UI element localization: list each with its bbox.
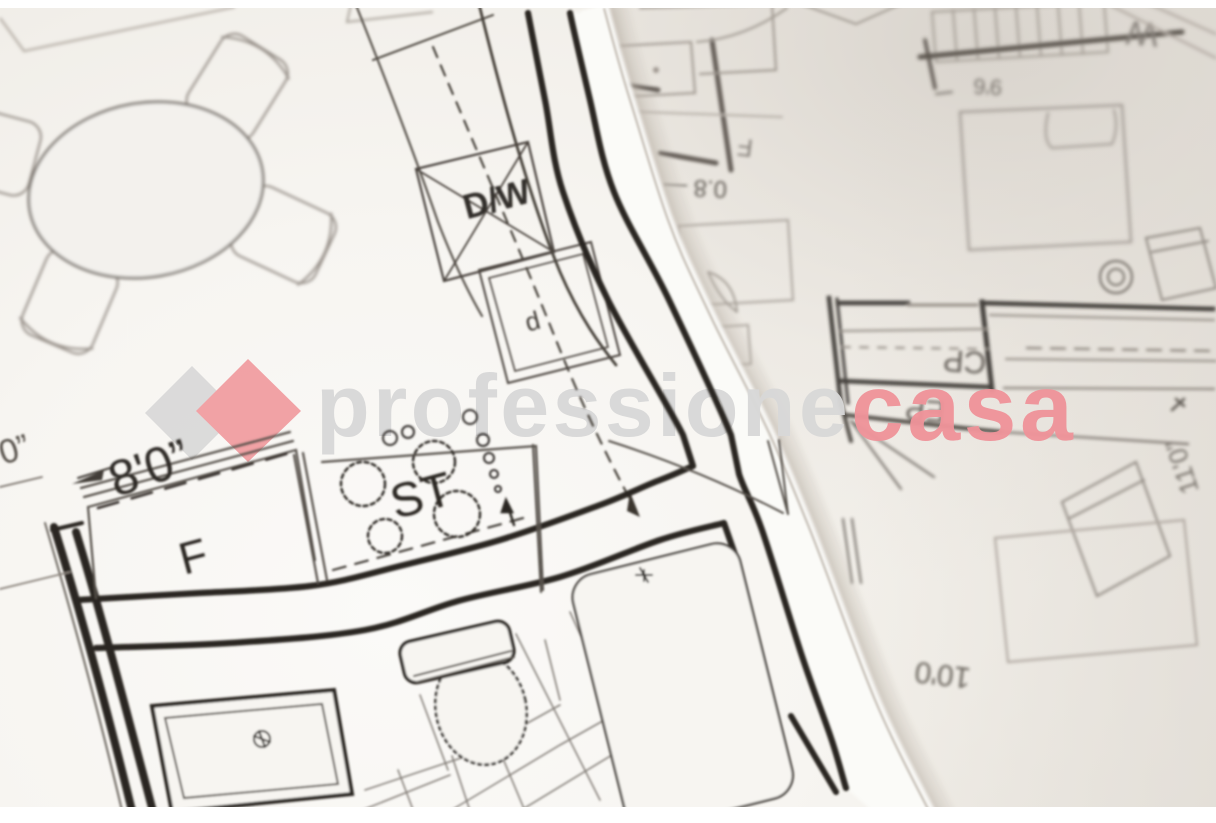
svg-text:casa: casa	[851, 355, 1076, 461]
svg-text:W: W	[1125, 13, 1160, 54]
svg-text:9'6: 9'6	[973, 74, 1003, 100]
svg-text:0.8 —: 0.8 —	[662, 172, 727, 202]
svg-text:10'0: 10'0	[913, 655, 972, 695]
